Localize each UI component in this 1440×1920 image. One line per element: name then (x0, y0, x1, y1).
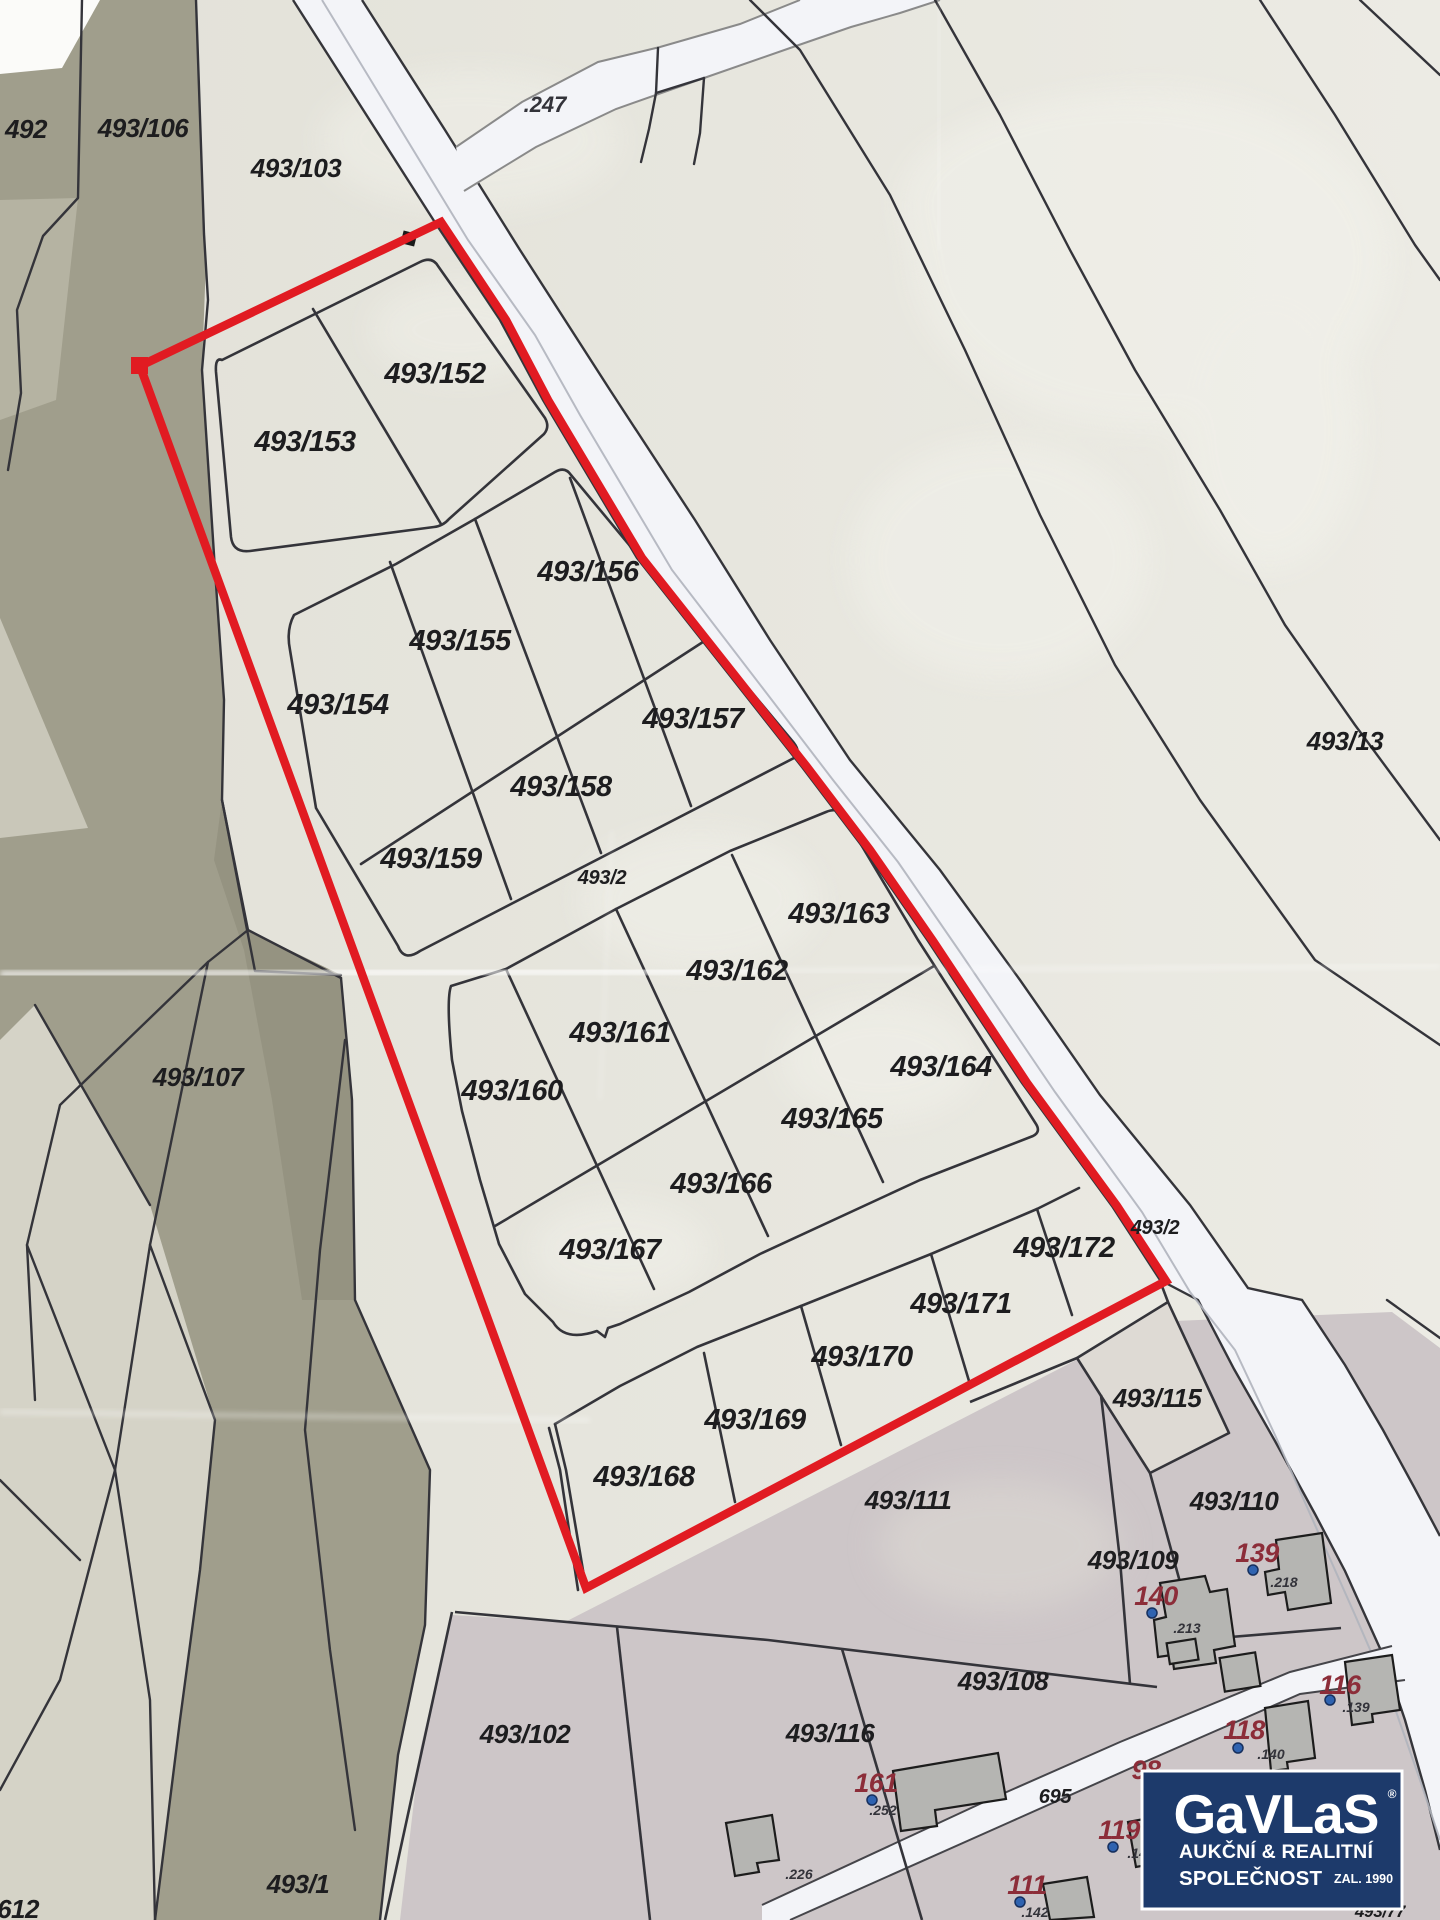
svg-text:.140: .140 (1257, 1746, 1284, 1762)
svg-text:139: 139 (1235, 1538, 1279, 1568)
svg-text:161: 161 (854, 1768, 898, 1798)
svg-text:695: 695 (1039, 1786, 1073, 1808)
svg-text:119: 119 (1098, 1815, 1140, 1845)
svg-text:493/172: 493/172 (1012, 1232, 1115, 1264)
svg-text:.226: .226 (785, 1866, 812, 1882)
svg-text:.139: .139 (1342, 1699, 1369, 1715)
svg-text:493/168: 493/168 (592, 1461, 696, 1493)
svg-text:493/156: 493/156 (536, 556, 640, 588)
svg-text:493/166: 493/166 (669, 1168, 773, 1200)
svg-text:493/162: 493/162 (685, 955, 788, 987)
svg-text:493/159: 493/159 (379, 843, 482, 875)
svg-text:493/115: 493/115 (1112, 1383, 1203, 1413)
svg-text:493/111: 493/111 (864, 1485, 952, 1515)
svg-text:493/155: 493/155 (408, 625, 512, 657)
svg-text:492: 492 (4, 114, 48, 144)
svg-text:493/2: 493/2 (577, 867, 627, 889)
svg-text:493/102: 493/102 (479, 1719, 572, 1749)
svg-text:493/157: 493/157 (641, 703, 746, 735)
svg-text:493/165: 493/165 (780, 1103, 884, 1135)
svg-text:493/163: 493/163 (787, 898, 890, 930)
svg-text:SPOLEČNOST: SPOLEČNOST (1179, 1866, 1323, 1890)
svg-text:493/153: 493/153 (253, 426, 356, 458)
svg-text:493/170: 493/170 (810, 1341, 913, 1373)
svg-text:140: 140 (1134, 1581, 1178, 1611)
svg-text:116: 116 (1319, 1670, 1362, 1700)
svg-text:AUKČNÍ & REALITNÍ: AUKČNÍ & REALITNÍ (1179, 1839, 1373, 1863)
svg-text:.213: .213 (1173, 1620, 1200, 1636)
svg-text:.218: .218 (1270, 1574, 1297, 1590)
svg-text:493/154: 493/154 (286, 689, 389, 721)
svg-text:111: 111 (1007, 1870, 1047, 1900)
svg-text:GaVLaS: GaVLaS (1174, 1783, 1379, 1845)
svg-text:612: 612 (0, 1894, 40, 1920)
svg-text:493/160: 493/160 (460, 1075, 563, 1107)
svg-text:493/171: 493/171 (909, 1288, 1011, 1320)
svg-text:®: ® (1388, 1787, 1397, 1801)
svg-text:493/158: 493/158 (509, 771, 613, 803)
svg-text:.142: .142 (1021, 1904, 1048, 1920)
svg-text:493/164: 493/164 (889, 1051, 992, 1083)
svg-text:493/116: 493/116 (785, 1718, 876, 1748)
svg-text:493/109: 493/109 (1087, 1545, 1180, 1575)
svg-text:493/107: 493/107 (152, 1062, 246, 1092)
svg-text:493/110: 493/110 (1189, 1486, 1280, 1516)
svg-text:493/1: 493/1 (266, 1869, 330, 1899)
svg-text:ZAL. 1990: ZAL. 1990 (1334, 1872, 1393, 1886)
svg-text:118: 118 (1223, 1715, 1265, 1745)
svg-text:493/152: 493/152 (383, 358, 486, 390)
svg-text:493/169: 493/169 (703, 1404, 806, 1436)
svg-text:493/2: 493/2 (1130, 1217, 1180, 1239)
svg-text:493/106: 493/106 (97, 113, 190, 143)
svg-text:493/103: 493/103 (250, 153, 343, 183)
svg-text:.247: .247 (524, 92, 569, 117)
svg-text:493/161: 493/161 (568, 1017, 670, 1049)
svg-text:493/167: 493/167 (558, 1234, 663, 1266)
svg-text:493/13: 493/13 (1306, 726, 1385, 756)
svg-text:493/108: 493/108 (957, 1666, 1050, 1696)
